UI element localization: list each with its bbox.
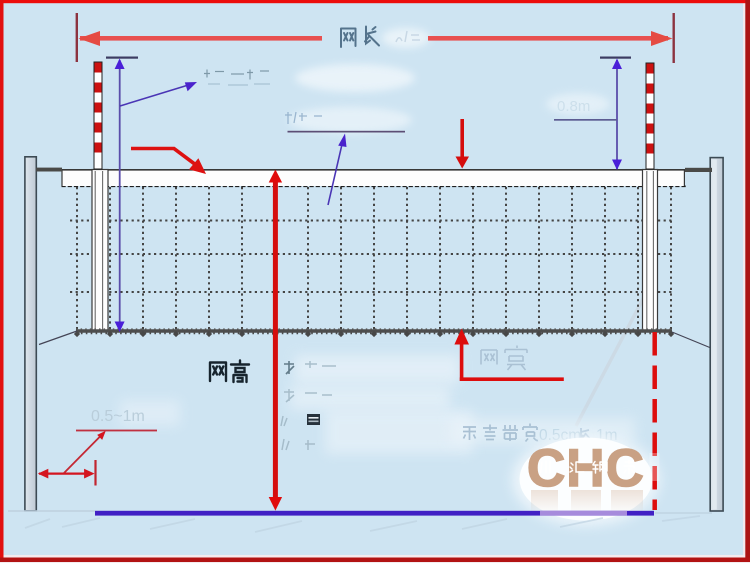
svg-text:0.5~1m: 0.5~1m: [91, 408, 145, 425]
svg-text:0.8m: 0.8m: [557, 98, 590, 115]
svg-text:CHC: CHC: [527, 439, 645, 498]
